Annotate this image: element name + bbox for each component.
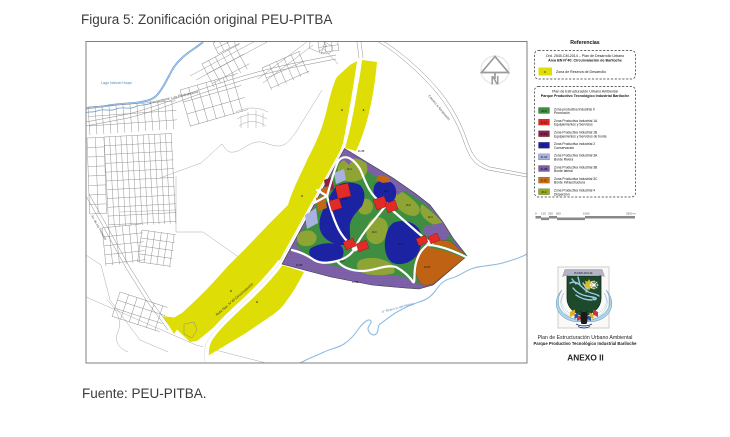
svg-text:ZI-3B: ZI-3B: [541, 167, 548, 171]
svg-text:Fuente: PEU-PITBA.: Fuente: PEU-PITBA.: [82, 386, 207, 401]
svg-text:Dispersión: Dispersión: [554, 192, 570, 196]
svg-text:2500 m: 2500 m: [626, 212, 636, 216]
svg-text:ZI-4: ZI-4: [542, 190, 547, 194]
svg-text:ZI-1A: ZI-1A: [541, 120, 548, 124]
svg-text:BARILOCHE: BARILOCHE: [574, 271, 592, 275]
svg-text:ZI-4: ZI-4: [428, 215, 433, 219]
svg-text:500: 500: [556, 212, 561, 216]
svg-text:ANEXO II: ANEXO II: [567, 353, 603, 363]
svg-text:ZI-0: ZI-0: [542, 109, 547, 113]
svg-text:ZI-0: ZI-0: [372, 230, 377, 234]
svg-text:250: 250: [548, 212, 553, 216]
svg-text:Borde Infraestructura: Borde Infraestructura: [554, 181, 585, 185]
svg-text:ZI-2: ZI-2: [342, 197, 347, 201]
svg-text:ZI-2: ZI-2: [398, 242, 403, 246]
svg-text:N: N: [491, 74, 500, 88]
svg-text:ZI-0: ZI-0: [406, 203, 411, 207]
svg-text:Parque Productivo Tecnológico: Parque Productivo Tecnológico Industrial…: [541, 94, 629, 98]
svg-text:ZI-3C: ZI-3C: [541, 178, 548, 182]
svg-text:Promoción: Promoción: [554, 111, 570, 115]
svg-text:Lago Nahuel Huapi: Lago Nahuel Huapi: [101, 81, 132, 85]
svg-text:ZI-3C: ZI-3C: [424, 265, 431, 269]
svg-text:ZI-3A: ZI-3A: [541, 155, 548, 159]
svg-text:Borde Rivera: Borde Rivera: [554, 158, 573, 162]
svg-text:Figura 5: Zonificación origina: Figura 5: Zonificación original PEU-PITB…: [81, 12, 332, 27]
svg-text:Área BN N°40: Circunvalación d: Área BN N°40: Circunvalación de Bariloch…: [548, 57, 622, 62]
svg-text:Plan de Estructuración Urbano: Plan de Estructuración Urbano Ambiental: [552, 90, 618, 94]
svg-text:Ord. 2540-CM-2014 – Plan de De: Ord. 2540-CM-2014 – Plan de Desarrollo U…: [546, 54, 624, 58]
svg-text:ZI-1B: ZI-1B: [541, 132, 548, 136]
svg-text:Borde lateral: Borde lateral: [554, 169, 573, 173]
svg-text:125: 125: [541, 212, 546, 216]
svg-text:Parque Productivo Tecnológico: Parque Productivo Tecnológico Industrial…: [534, 341, 638, 346]
svg-text:ZI-4: ZI-4: [347, 167, 352, 171]
svg-text:ZI-3B: ZI-3B: [358, 149, 365, 153]
svg-text:ZI-2: ZI-2: [340, 259, 345, 263]
svg-text:Equipamientos y Servicios: Equipamientos y Servicios: [554, 123, 593, 127]
svg-text:ZI-2: ZI-2: [542, 144, 547, 148]
svg-text:1000: 1000: [583, 212, 590, 216]
svg-text:ZI-3B: ZI-3B: [352, 280, 359, 284]
svg-text:ZI-2: ZI-2: [384, 189, 389, 193]
svg-text:Referencias: Referencias: [570, 40, 600, 46]
svg-text:Equipamientos y Servicios de b: Equipamientos y Servicios de borde: [554, 134, 607, 138]
svg-text:Conservación: Conservación: [554, 146, 574, 150]
svg-text:Zona de Reserva de Desarrollo: Zona de Reserva de Desarrollo: [556, 70, 606, 74]
svg-text:ZI-3B: ZI-3B: [296, 263, 303, 267]
